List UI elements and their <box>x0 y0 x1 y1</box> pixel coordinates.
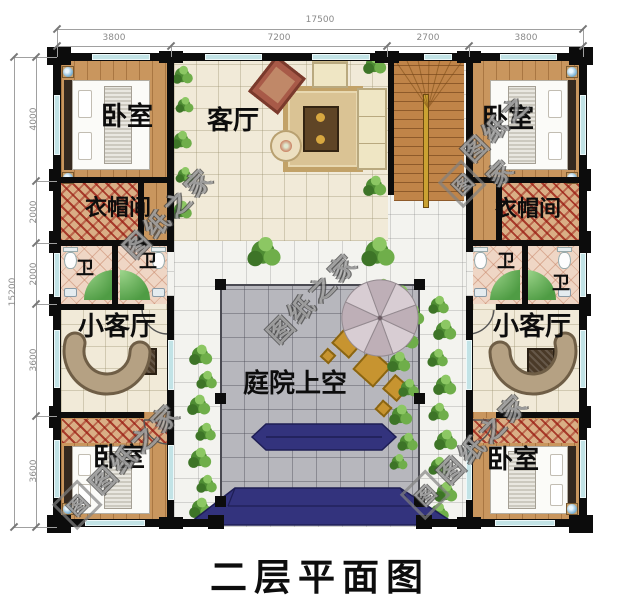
room-label-bath: 卫 <box>76 260 94 278</box>
door-gap <box>144 412 167 418</box>
window <box>54 440 60 498</box>
lamp <box>63 67 73 77</box>
pier <box>49 294 61 316</box>
toilet-tank <box>557 247 572 252</box>
pier <box>47 515 71 533</box>
bed-pillow <box>550 484 563 506</box>
bed-pillow <box>78 484 91 506</box>
door-gap <box>473 304 496 310</box>
courtyard-post <box>414 279 425 290</box>
sink <box>152 288 165 297</box>
wardrobe-bottom-right <box>473 419 578 443</box>
window <box>580 330 586 388</box>
window <box>205 54 262 60</box>
room-label-bath: 卫 <box>552 275 570 293</box>
pier <box>49 169 61 191</box>
dim-left-total: 15200 <box>8 278 18 307</box>
bed-headboard <box>568 80 576 170</box>
courtyard-post <box>414 393 425 404</box>
cloakroom-right-floor <box>470 183 497 241</box>
pier <box>457 517 481 529</box>
bed-pillow <box>78 454 91 476</box>
sink <box>474 288 487 297</box>
room-label-cloak-left: 衣帽间 <box>85 198 151 220</box>
wardrobe-bottom-left <box>62 419 167 443</box>
window <box>466 340 472 390</box>
nightstand <box>566 503 578 515</box>
door-gap <box>144 304 167 310</box>
window <box>580 253 586 297</box>
pier <box>579 231 591 253</box>
sink <box>64 288 77 297</box>
window <box>168 340 174 390</box>
window <box>85 520 145 526</box>
room-label-bath: 卫 <box>139 253 157 271</box>
wall-interior <box>522 246 528 304</box>
toilet <box>558 252 571 269</box>
pier <box>49 231 61 253</box>
pier <box>579 169 591 191</box>
pier <box>159 517 183 529</box>
stair-rail <box>424 95 428 207</box>
window <box>500 54 557 60</box>
dim-top-total: 17500 <box>306 15 335 25</box>
window <box>168 445 174 500</box>
dim-top-seg: 3800 <box>103 33 126 43</box>
room-label-living: 客厅 <box>207 108 259 134</box>
round-side-table <box>270 130 302 162</box>
dim-extension <box>171 46 172 57</box>
nightstand <box>566 66 578 78</box>
dim-left-seg: 2000 <box>29 263 39 286</box>
dim-line-top-total <box>57 29 583 30</box>
wall-interior <box>473 177 579 183</box>
courtyard-post <box>414 496 425 507</box>
nightstand <box>62 503 74 515</box>
bed-pillow <box>78 132 92 160</box>
dim-line-top-segs <box>57 46 583 47</box>
staircase <box>394 61 464 201</box>
window <box>54 253 60 297</box>
pier <box>569 515 593 533</box>
dim-extension <box>469 46 470 57</box>
courtyard-post <box>215 279 226 290</box>
door-gap <box>167 252 174 296</box>
dim-top-seg: 7200 <box>268 33 291 43</box>
bed-pillow <box>550 454 563 476</box>
toilet-tank <box>473 247 488 252</box>
pier <box>579 406 591 428</box>
room-label-bedroom-tl: 卧室 <box>101 104 153 130</box>
lounge-table-left <box>129 348 157 375</box>
armchair-cushion <box>259 67 295 104</box>
window <box>54 330 60 388</box>
dim-extension <box>36 181 57 182</box>
bed-pillow <box>548 90 562 118</box>
wall-stairs <box>388 57 394 195</box>
courtyard-post <box>215 393 226 404</box>
pier <box>416 515 432 529</box>
room-label-bath: 卫 <box>497 253 515 271</box>
room-label-bedroom-tr: 卧室 <box>482 106 534 132</box>
dim-left-seg: 4000 <box>29 108 39 131</box>
dim-top-seg: 3800 <box>515 33 538 43</box>
bed-pillow <box>78 90 92 118</box>
room-label-courtyard: 庭院上空 <box>243 371 347 397</box>
dim-extension <box>36 416 57 417</box>
table-decor <box>316 113 325 122</box>
coffee-table <box>303 106 339 152</box>
floor-plan: 卧室 客厅 卧室 衣帽间 衣帽间 卫 卫 卫 卫 小客厅 小客厅 庭院上空 卧室… <box>0 0 640 608</box>
lamp <box>567 67 577 77</box>
pier <box>49 406 61 428</box>
lamp <box>567 504 577 514</box>
wall-interior <box>112 246 118 304</box>
window <box>580 440 586 498</box>
dim-left-seg: 3600 <box>29 460 39 483</box>
sofa <box>357 88 387 170</box>
dim-extension <box>36 304 57 305</box>
bed-headboard <box>64 80 72 170</box>
dim-top-seg: 2700 <box>417 33 440 43</box>
window <box>312 54 370 60</box>
room-label-lounge-right: 小客厅 <box>493 314 571 340</box>
dim-left-seg: 2000 <box>29 201 39 224</box>
window <box>424 54 452 60</box>
toilet-tank <box>63 247 78 252</box>
door-gap <box>473 412 496 418</box>
bed-pillow <box>548 132 562 160</box>
dim-extension <box>387 46 388 57</box>
wall-interior <box>61 177 167 183</box>
room-label-lounge-left: 小客厅 <box>78 314 156 340</box>
dim-left-seg: 3600 <box>29 349 39 372</box>
window <box>580 95 586 155</box>
room-label-bedroom-br: 卧室 <box>487 447 539 473</box>
window <box>54 95 60 155</box>
pier <box>47 47 71 65</box>
door-gap <box>466 252 473 296</box>
toilet <box>474 252 487 269</box>
dim-extension <box>36 243 57 244</box>
window <box>495 520 555 526</box>
flower-decor <box>280 140 292 152</box>
table-decor <box>316 135 325 144</box>
pier <box>579 294 591 316</box>
armchair-single <box>312 57 348 88</box>
window <box>92 54 150 60</box>
lounge-table-right <box>527 348 555 375</box>
nightstand <box>62 66 74 78</box>
room-label-bedroom-bl: 卧室 <box>93 445 145 471</box>
lamp <box>63 504 73 514</box>
pier <box>569 47 593 65</box>
window <box>466 445 472 500</box>
page-title: 二层平面图 <box>210 547 430 601</box>
room-label-cloak-right: 衣帽间 <box>495 199 561 221</box>
pier <box>208 515 224 529</box>
courtyard-post <box>215 496 226 507</box>
